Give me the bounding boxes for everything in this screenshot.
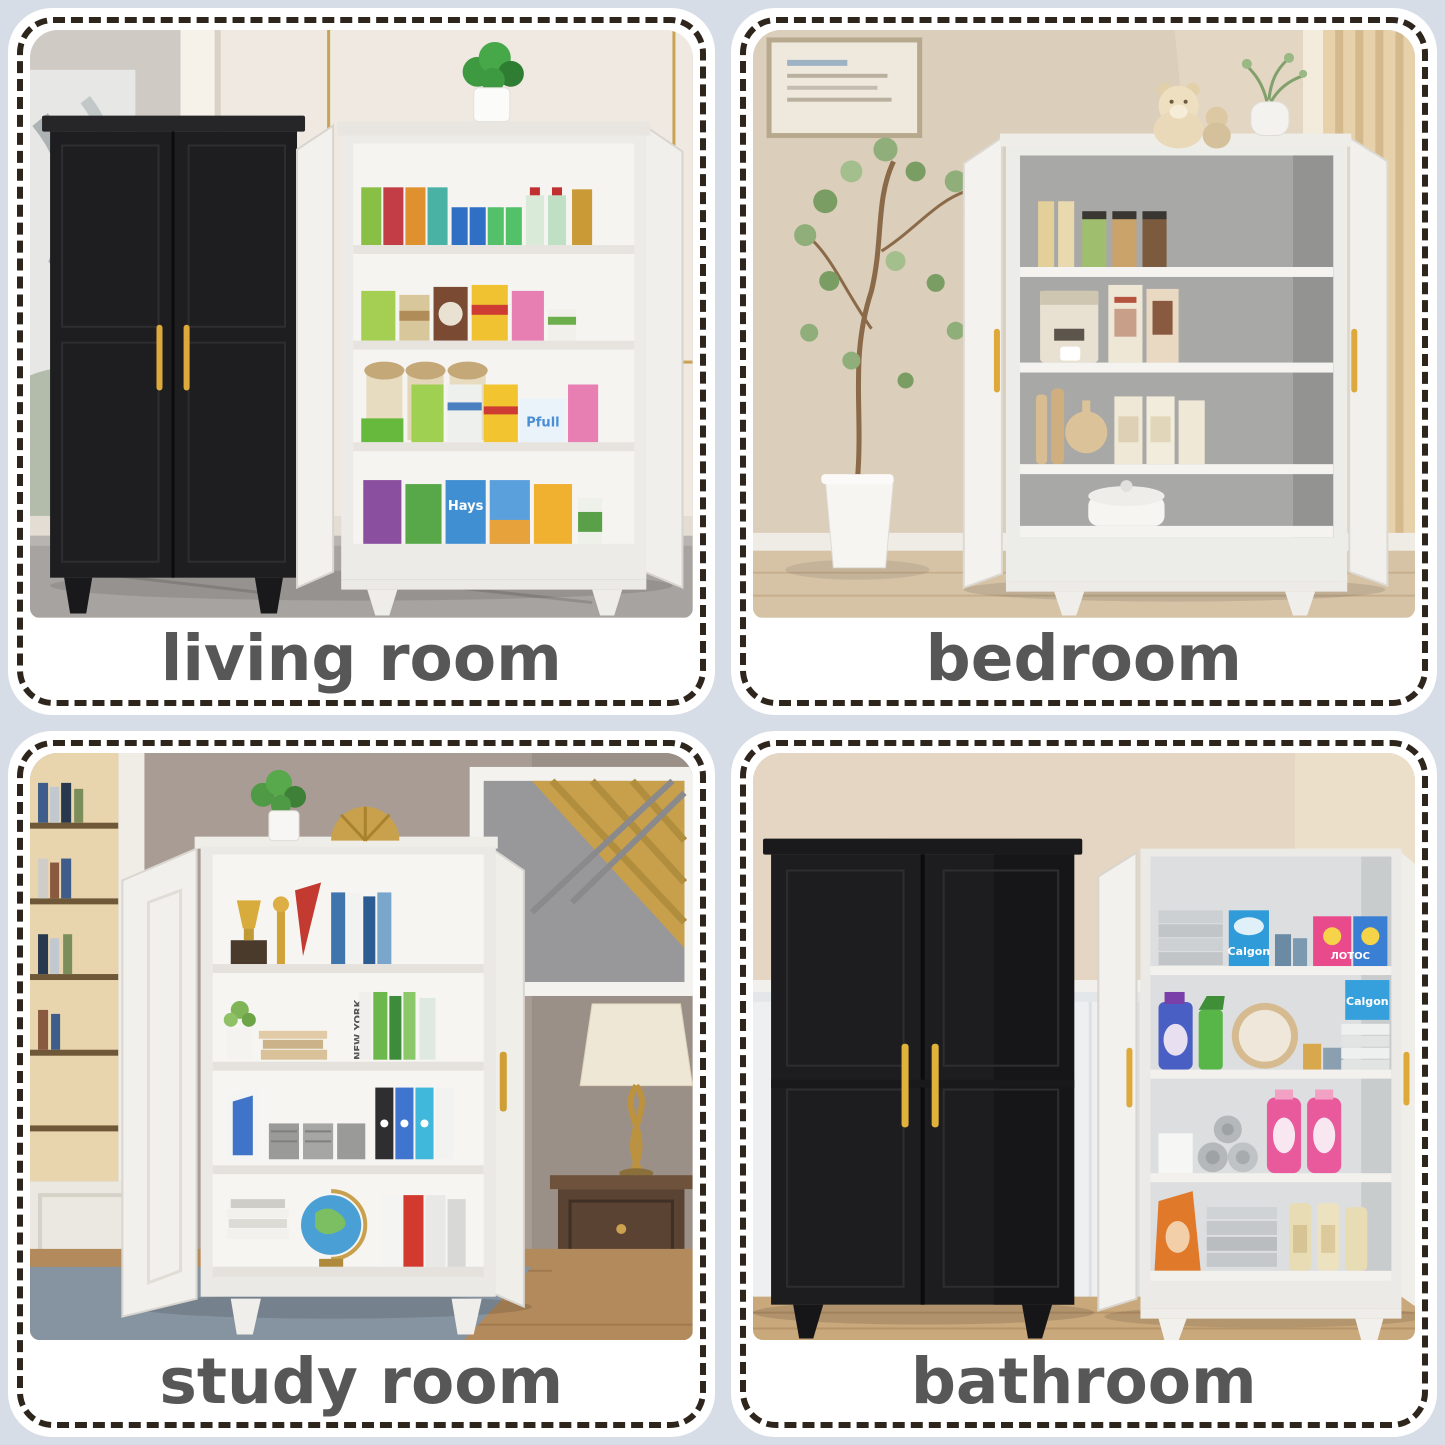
white-cabinet <box>963 134 1387 616</box>
caption-bedroom: bedroom <box>753 618 1416 700</box>
caption-bathroom: bathroom <box>753 1340 1416 1422</box>
living-room-photo: Pfull Hays <box>30 30 693 618</box>
gold-handle <box>184 325 190 391</box>
open-door-right <box>492 848 524 1306</box>
card-living-room-border: Pfull Hays <box>17 17 706 706</box>
card-bathroom-border: Calgon ЛОТОС <box>740 740 1429 1429</box>
bathroom-scene: Calgon ЛОТОС <box>753 753 1416 1341</box>
svg-text:Calgon: Calgon <box>1227 945 1270 958</box>
white-cabinet: Calgon ЛОТОС <box>1098 848 1415 1340</box>
card-bedroom: bedroom <box>731 8 1438 715</box>
card-living-room: Pfull Hays <box>8 8 715 715</box>
open-door-left <box>297 126 333 588</box>
product-collage: Pfull Hays <box>0 0 1445 1445</box>
study-room-photo: NEW YORK <box>30 753 693 1341</box>
open-door-right <box>644 126 682 588</box>
gold-handle <box>901 1043 908 1127</box>
bedroom-photo <box>753 30 1416 618</box>
card-study-room: NEW YORK <box>8 731 715 1438</box>
svg-text:Calgon: Calgon <box>1345 994 1388 1007</box>
gold-handle <box>931 1043 938 1127</box>
gold-handle <box>1351 329 1357 393</box>
bedroom-scene <box>753 30 1416 618</box>
card-bedroom-border: bedroom <box>740 17 1429 706</box>
card-bathroom: Calgon ЛОТОС <box>731 731 1438 1438</box>
gold-handle <box>1126 1047 1132 1107</box>
white-cabinet: NEW YORK <box>122 836 524 1334</box>
gold-handle <box>500 1051 507 1111</box>
black-cabinet <box>763 838 1082 1338</box>
open-door-left <box>122 848 196 1316</box>
shelf-chip-bags: Hays <box>363 480 602 544</box>
bathroom-photo: Calgon ЛОТОС <box>753 753 1416 1341</box>
caption-study-room: study room <box>30 1340 693 1422</box>
white-pantry-cabinet: Pfull Hays <box>297 122 682 616</box>
gold-handle <box>1403 1051 1409 1105</box>
gold-handle <box>993 329 999 393</box>
caption-living-room: living room <box>30 618 693 700</box>
svg-text:Pfull: Pfull <box>526 415 559 430</box>
svg-text:Hays: Hays <box>448 499 484 514</box>
black-cabinet <box>42 116 305 614</box>
svg-text:ЛОТОС: ЛОТОС <box>1330 951 1370 962</box>
card-study-room-border: NEW YORK <box>17 740 706 1429</box>
gold-handle <box>156 325 162 391</box>
study-room-scene: NEW YORK <box>30 753 693 1341</box>
living-room-scene: Pfull Hays <box>30 30 693 618</box>
